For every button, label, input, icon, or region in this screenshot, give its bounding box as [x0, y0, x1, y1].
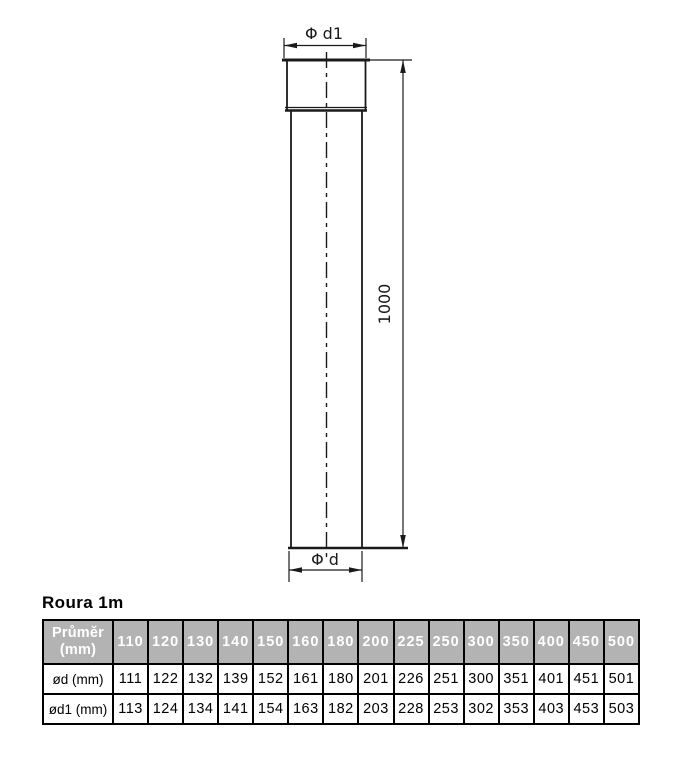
od-value-cell: 401 — [534, 664, 569, 694]
diameter-header-cell: 350 — [499, 620, 534, 664]
diameter-header-cell: 400 — [534, 620, 569, 664]
od1-value-cell: 124 — [148, 694, 183, 724]
od1-value-cell: 503 — [604, 694, 639, 724]
pipe-drawing-svg: Φ d1 Φ d 1000 — [0, 0, 674, 592]
table-header-row: Průměr (mm) 110 120 130 140 150 160 180 … — [43, 620, 639, 664]
od1-value-cell: 203 — [358, 694, 393, 724]
arrow-up-icon — [400, 60, 406, 73]
od-value-cell: 152 — [253, 664, 288, 694]
diameter-header-cell: 225 — [394, 620, 429, 664]
diameter-header-cell: 250 — [429, 620, 464, 664]
row-label: ød (mm) — [43, 664, 113, 694]
od-value-cell: 139 — [218, 664, 253, 694]
od1-value-cell: 182 — [323, 694, 358, 724]
diameter-header-cell: 180 — [323, 620, 358, 664]
page-title: Roura 1m — [42, 593, 124, 613]
od1-value-cell: 253 — [429, 694, 464, 724]
corner-header-line1: Průměr — [44, 625, 112, 642]
od-value-cell: 226 — [394, 664, 429, 694]
diameter-header-cell: 130 — [183, 620, 218, 664]
od1-value-cell: 113 — [113, 694, 148, 724]
od1-value-cell: 141 — [218, 694, 253, 724]
table-corner-header: Průměr (mm) — [43, 620, 113, 664]
od1-value-cell: 154 — [253, 694, 288, 724]
od-value-cell: 201 — [358, 664, 393, 694]
table-row-od1: ød1 (mm) 113 124 134 141 154 163 182 203… — [43, 694, 639, 724]
diameter-spec-table: Průměr (mm) 110 120 130 140 150 160 180 … — [42, 619, 640, 725]
table-row-od: ød (mm) 111 122 132 139 152 161 180 201 … — [43, 664, 639, 694]
diameter-header-cell: 120 — [148, 620, 183, 664]
pipe-technical-drawing: Φ d1 Φ d 1000 — [0, 0, 674, 592]
od1-value-cell: 403 — [534, 694, 569, 724]
arrow-right-icon — [349, 567, 362, 573]
pipe-body — [288, 111, 408, 548]
top-diameter-label: Φ d1 — [305, 24, 343, 43]
od-value-cell: 132 — [183, 664, 218, 694]
arrow-right-icon — [353, 43, 366, 49]
diameter-header-cell: 500 — [604, 620, 639, 664]
arrow-down-icon — [400, 535, 406, 548]
row-label: ød1 (mm) — [43, 694, 113, 724]
length-label: 1000 — [375, 284, 394, 325]
od1-value-cell: 134 — [183, 694, 218, 724]
diameter-header-cell: 450 — [569, 620, 604, 664]
od-value-cell: 351 — [499, 664, 534, 694]
od-value-cell: 251 — [429, 664, 464, 694]
od-value-cell: 122 — [148, 664, 183, 694]
od1-value-cell: 353 — [499, 694, 534, 724]
od-value-cell: 180 — [323, 664, 358, 694]
catalog-page: Φ d1 Φ d 1000 — [0, 0, 674, 774]
diameter-header-cell: 140 — [218, 620, 253, 664]
bottom-diameter-label: Φ d — [311, 550, 339, 569]
od-value-cell: 111 — [113, 664, 148, 694]
od-value-cell: 161 — [288, 664, 323, 694]
od-value-cell: 451 — [569, 664, 604, 694]
diameter-header-cell: 150 — [253, 620, 288, 664]
arrow-left-icon — [284, 43, 297, 49]
diameter-header-cell: 160 — [288, 620, 323, 664]
diameter-header-cell: 200 — [358, 620, 393, 664]
od1-value-cell: 228 — [394, 694, 429, 724]
od-value-cell: 501 — [604, 664, 639, 694]
od1-value-cell: 163 — [288, 694, 323, 724]
diameter-header-cell: 300 — [464, 620, 499, 664]
corner-header-line2: (mm) — [44, 642, 112, 659]
od1-value-cell: 302 — [464, 694, 499, 724]
od1-value-cell: 453 — [569, 694, 604, 724]
diameter-header-cell: 110 — [113, 620, 148, 664]
arrow-left-icon — [289, 567, 302, 573]
od-value-cell: 300 — [464, 664, 499, 694]
